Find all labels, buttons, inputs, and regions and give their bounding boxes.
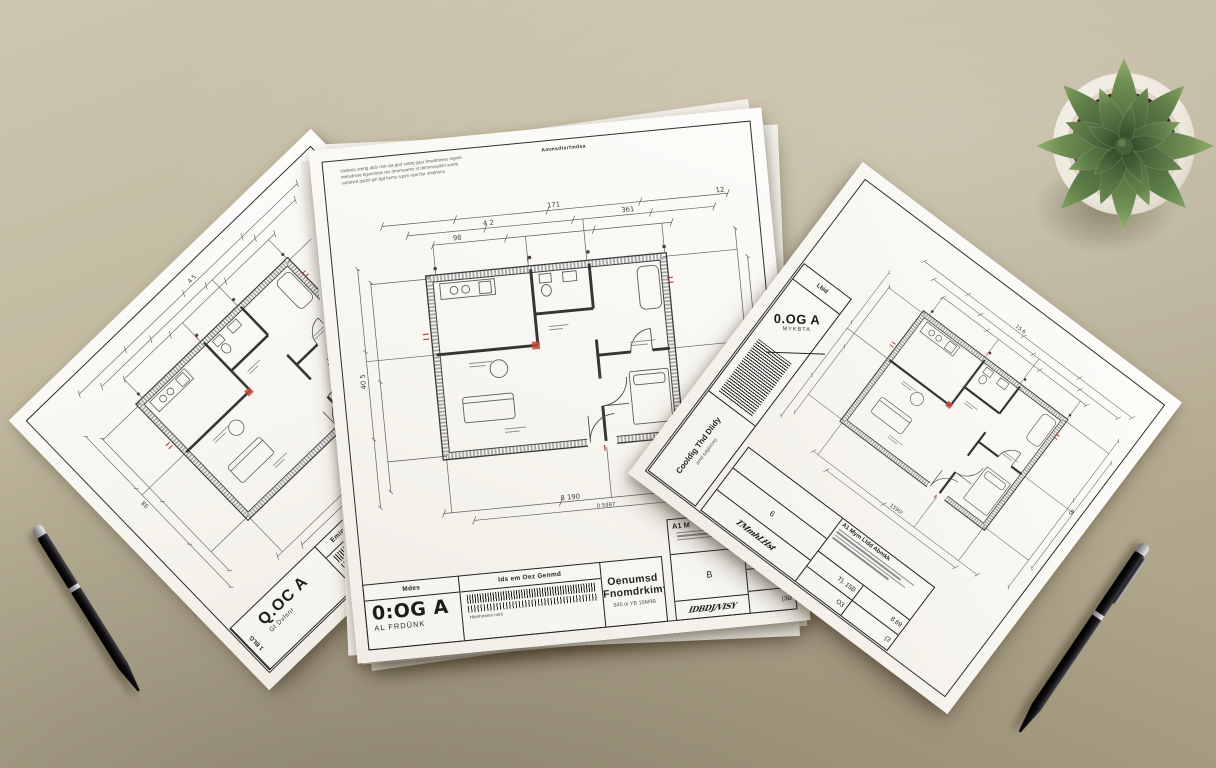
dim-label: 40 5	[359, 374, 368, 390]
dim-label: 98	[140, 499, 150, 509]
pen-tip	[1015, 704, 1041, 735]
pen-left	[31, 524, 143, 694]
dim-label: 0 5987	[596, 502, 615, 510]
dim-label: 361	[621, 205, 635, 214]
drawing-number-sub: MYKBTA	[783, 326, 811, 333]
title-number-cell: Mdes 0:OG A AL FRDÜNK	[363, 577, 465, 650]
drawing-title: Cooldig Thd Dlidy	[674, 416, 722, 476]
pen-upper-body	[1095, 551, 1144, 617]
title-barcode-cell: Ids em Oez Genmd Hbmhmmm mml	[459, 563, 606, 640]
succulent-leaves	[1036, 58, 1215, 230]
succulent-illustration	[992, 12, 1216, 276]
drawing-title: Oenumsd Fnomdrkimy	[602, 571, 665, 601]
succulent-plant	[992, 12, 1216, 276]
dim-label: 4 2	[483, 219, 495, 228]
dim-label: 4 5	[186, 273, 198, 285]
drawing-number: 0.OG A	[774, 310, 821, 327]
pen-upper-body	[37, 533, 78, 589]
desk-scene: 4 5 98 1 8 1 BLG Q.OC A Gl Dvlsnr Emind …	[0, 0, 1216, 768]
signature: IDBDJ/VISY	[688, 600, 738, 615]
title-name-cell: Oenumsd Fnomdrkimy 845 oi YB 15M9B	[600, 557, 667, 627]
pen-lower-body	[1032, 614, 1102, 710]
dim-label: 12	[715, 186, 724, 195]
pen-tip	[118, 663, 143, 694]
dim-label: 45	[1067, 507, 1076, 516]
dim-label: 98	[453, 234, 462, 243]
revision-left-column: B IDBDJ/VISY	[671, 548, 751, 620]
dim-label: 171	[547, 200, 561, 209]
revision-cell: B	[671, 548, 748, 602]
pen-lower-body	[71, 587, 127, 668]
